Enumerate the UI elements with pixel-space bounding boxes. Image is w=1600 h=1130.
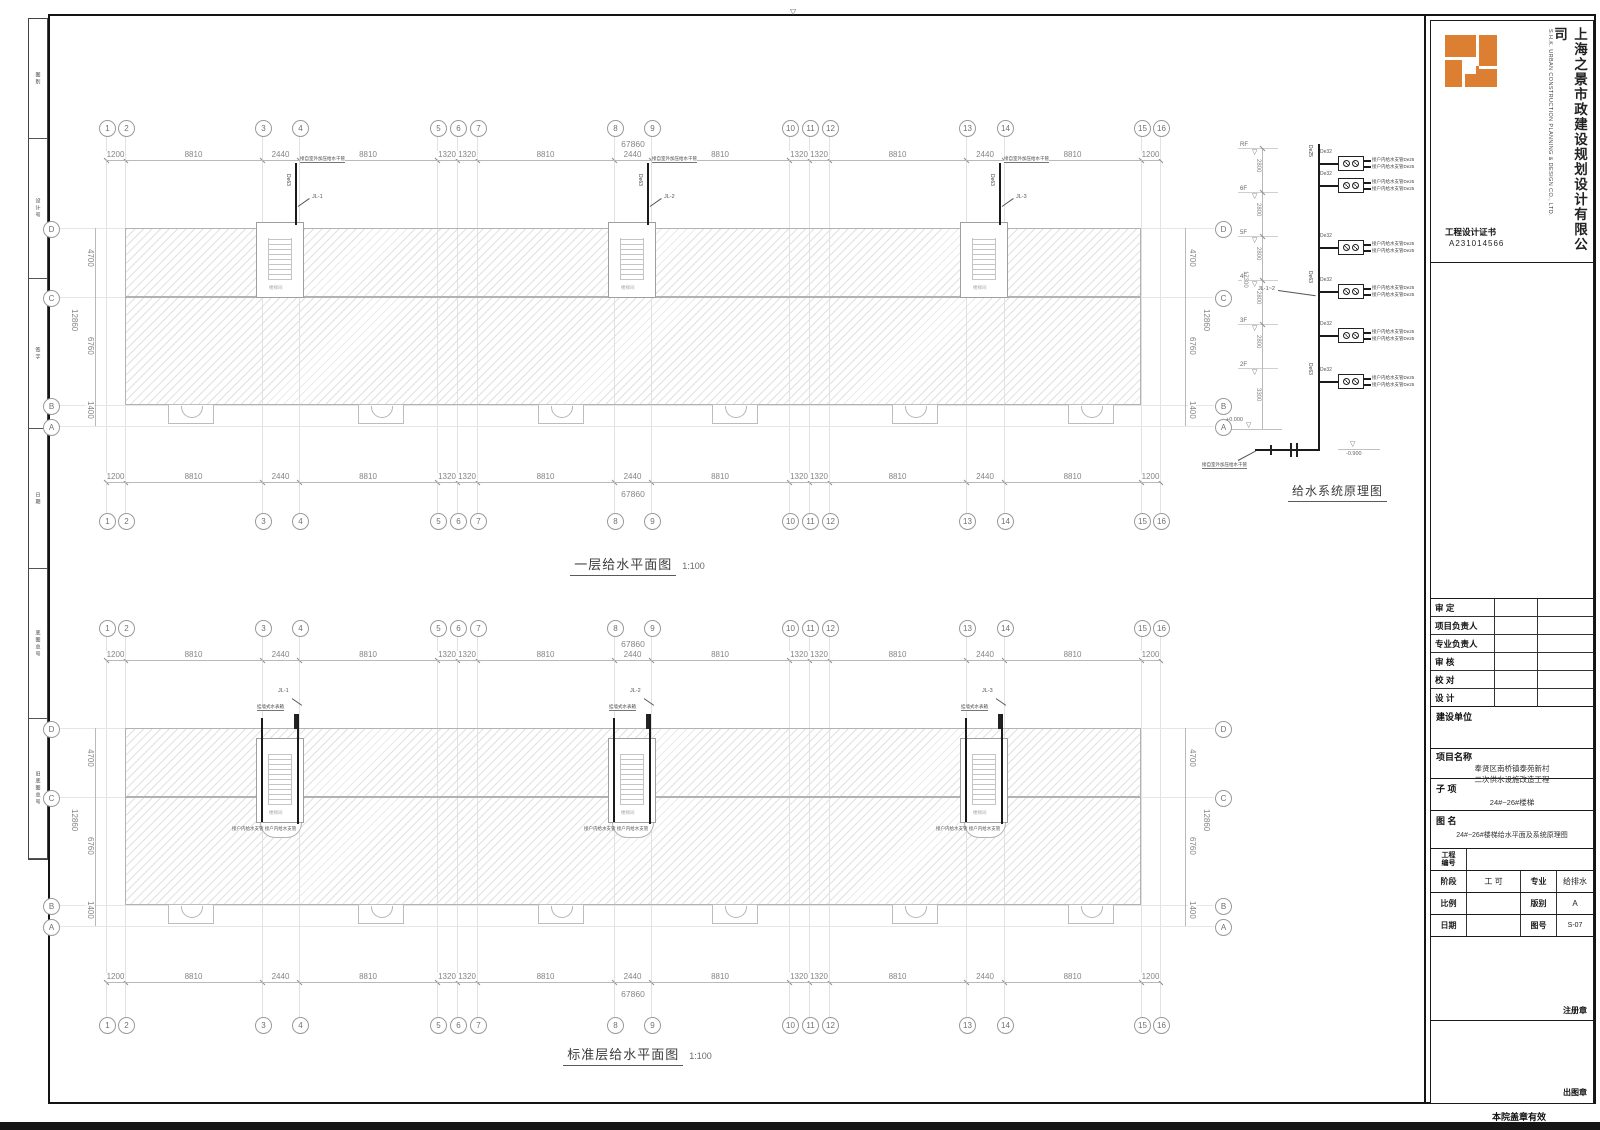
drawing-sheet: ▽ 图别设计号签字日期底图总号旧底图总号 1122334455667788991… (0, 0, 1600, 1130)
dim-label: 1200 (1141, 651, 1161, 659)
household-branch-label: 接户内给水支管De25 (1372, 164, 1414, 169)
branch-pipe (965, 718, 967, 822)
row-total-label: 12860 (1202, 808, 1210, 832)
binding-strip-label: 签字 (35, 347, 42, 361)
row-dim-line (95, 228, 96, 426)
grid-bubble-top: 5 (430, 120, 447, 137)
dim-label: 1200 (106, 151, 126, 159)
supply-main-note: 接自室外加压给水干管 (652, 156, 697, 163)
riser-id-label: JL-1~2 (1258, 286, 1275, 293)
flange-symbol (1296, 443, 1298, 457)
dim-label: 2440 (271, 473, 291, 481)
dim-label: 8810 (358, 651, 378, 659)
dim-label: 8810 (184, 151, 204, 159)
household-branch-label: 接户内给水支管De25 (1372, 241, 1414, 246)
signoff-table: 审 定项目负责人专业负责人审 核校 对设 计 (1431, 599, 1593, 707)
dim-label: 2440 (975, 973, 995, 981)
dim-label: 2440 (623, 473, 643, 481)
household-branch-label: 接户内给水支管De25 (1372, 375, 1414, 380)
row-bubble-right: C (1215, 790, 1232, 807)
dim-label: 8810 (358, 473, 378, 481)
grid-bubble-top: 14 (997, 120, 1014, 137)
branch-pipes-label: 接户内给水支管 接户内给水支管 (584, 826, 648, 831)
dim-label: 8810 (888, 473, 908, 481)
dim-label: 1200 (1141, 973, 1161, 981)
row-dim-label: 4700 (1188, 748, 1196, 768)
dim-label: 8810 (536, 651, 556, 659)
dim-label: 8810 (710, 973, 730, 981)
branch-pipe (261, 718, 263, 822)
water-meter-icon (1343, 378, 1350, 385)
level-mark: ▽ (1252, 281, 1257, 288)
grid-bubble-bottom: 2 (118, 513, 135, 530)
branch-out-line (1364, 244, 1371, 246)
riser-id-label: JL-2 (664, 194, 675, 201)
stair-room-label: 楼梯间 (621, 811, 635, 816)
grid-line (1160, 636, 1161, 1023)
row-bubble-right: C (1215, 290, 1232, 307)
signoff-date-cell (1538, 689, 1593, 707)
dim-label: 1320 (809, 651, 829, 659)
eng-no-label-2: 编号 (1442, 860, 1456, 868)
schematic-title: 给水系统原理图 (1288, 482, 1387, 502)
signoff-signature-cell (1495, 617, 1538, 634)
row-grid-line (58, 405, 1214, 406)
binding-strip-label: 设计号 (35, 198, 42, 219)
branch-connection (1318, 163, 1338, 165)
riser-id-label: JL-3 (1016, 194, 1027, 201)
riser-pipe (647, 163, 649, 225)
fig-no-label: 图号 (1521, 915, 1557, 936)
grid-bubble-bottom: 11 (802, 1017, 819, 1034)
dim-label: 8810 (184, 473, 204, 481)
household-branch-label: 接户内给水支管De25 (1372, 292, 1414, 297)
project-label: 项目名称 (1431, 749, 1593, 763)
grid-line (1160, 136, 1161, 519)
dim-label: 2440 (271, 651, 291, 659)
branch-connection (1318, 185, 1338, 187)
dim-label: 8810 (888, 151, 908, 159)
stairs (268, 754, 292, 805)
grid-bubble-bottom: 1 (99, 1017, 116, 1034)
water-meter-icon (1343, 288, 1350, 295)
dim-line-top (106, 660, 1160, 661)
signoff-label: 专业负责人 (1431, 635, 1495, 652)
branch-pipe (1001, 714, 1003, 824)
major-value: 给排水 (1557, 871, 1593, 892)
company-name-cn: 上海之景市政建设规划设计有限公司 (1549, 27, 1589, 257)
total-dim-label: 67860 (620, 990, 646, 999)
grid-bubble-bottom: 5 (430, 1017, 447, 1034)
leader-line (1278, 290, 1316, 296)
row-bubble-right: B (1215, 398, 1232, 415)
row-dim-label: 6760 (86, 336, 94, 356)
grid-line (106, 136, 107, 519)
blank-section (1431, 263, 1593, 599)
dim-label: 2440 (623, 651, 643, 659)
branch-out-line (1364, 182, 1371, 184)
dim-label: 8810 (888, 973, 908, 981)
grid-bubble-top: 13 (959, 620, 976, 637)
grid-bubble-bottom: 6 (450, 513, 467, 530)
bottom-bar (0, 1122, 1600, 1130)
level-mark: ▽ (1252, 193, 1257, 200)
edition-label: 版别 (1521, 893, 1557, 914)
grid-bubble-bottom: 1 (99, 513, 116, 530)
riser-pipe-size: De63 (989, 173, 994, 187)
binding-strip-cell: 日期 (29, 429, 47, 569)
level-mark: ▽ (1252, 325, 1257, 332)
dim-label: 1200 (106, 651, 126, 659)
stage-label: 阶段 (1431, 871, 1467, 892)
signoff-row: 校 对 (1431, 671, 1593, 689)
grid-bubble-bottom: 13 (959, 1017, 976, 1034)
grid-bubble-bottom: 12 (822, 1017, 839, 1034)
row-dim-line (95, 728, 96, 926)
signoff-row: 审 定 (1431, 599, 1593, 617)
row-dim-label: 4700 (86, 748, 94, 768)
row-total-label: 12860 (70, 808, 78, 832)
building-band-lower (125, 297, 1141, 405)
water-meter-box (1338, 240, 1364, 255)
stair-room-label: 楼梯间 (973, 811, 987, 816)
dim-label: 2440 (623, 151, 643, 159)
floor-dim-label: 2800 (1255, 334, 1261, 349)
branch-connection (1318, 335, 1338, 337)
company-section: 上海之景市政建设规划设计有限公司 S.H.K. URBAN CONSTRUCTI… (1431, 21, 1593, 263)
riser-pipe-size-low: De63 (1307, 362, 1312, 376)
registration-seal-cell: 注册章 (1431, 937, 1593, 1021)
subitem-cell: 子 项 24#~26#楼梯 (1431, 779, 1593, 811)
grid-bubble-bottom: 8 (607, 1017, 624, 1034)
grid-bubble-bottom: 8 (607, 513, 624, 530)
branch-pipes-label: 接户内给水支管 接户内给水支管 (936, 826, 1000, 831)
owner-cell: 建设单位 (1431, 707, 1593, 749)
floor-label: 6F (1240, 186, 1247, 193)
grid-bubble-top: 15 (1134, 620, 1151, 637)
signoff-label: 校 对 (1431, 671, 1495, 688)
date-row: 日期 图号 S-07 (1431, 915, 1593, 937)
dim-label: 2440 (975, 151, 995, 159)
grid-bubble-bottom: 3 (255, 513, 272, 530)
riser-id-label: JL-2 (630, 688, 641, 695)
eng-no-cell: 工程 编号 (1431, 849, 1593, 871)
grid-bubble-bottom: 15 (1134, 1017, 1151, 1034)
row-dim-label: 6760 (86, 836, 94, 856)
dim-label: 1320 (789, 973, 809, 981)
water-meter-box (1338, 374, 1364, 389)
level-mark: ▽ (1252, 237, 1257, 244)
household-branch-label: 接户内给水支管De25 (1372, 157, 1414, 162)
grid-bubble-bottom: 3 (255, 1017, 272, 1034)
drawing-name-cell: 图 名 24#~26#楼梯给水平面及系统原理图 (1431, 811, 1593, 849)
dim-label: 8810 (1063, 151, 1083, 159)
grid-bubble-top: 4 (292, 120, 309, 137)
dim-label: 8810 (710, 473, 730, 481)
dim-label: 1320 (457, 973, 477, 981)
grid-line (1141, 136, 1142, 519)
grid-bubble-bottom: 6 (450, 1017, 467, 1034)
branch-connection (1318, 247, 1338, 249)
row-dim-label: 6760 (1188, 336, 1196, 356)
grid-bubble-bottom: 9 (644, 1017, 661, 1034)
issue-seal-label: 出图章 (1563, 1087, 1587, 1098)
grid-bubble-top: 5 (430, 620, 447, 637)
grid-bubble-top: 16 (1153, 620, 1170, 637)
major-label: 专业 (1521, 871, 1557, 892)
dim-label: 2440 (975, 651, 995, 659)
dim-label: 1320 (809, 473, 829, 481)
household-branch-label: 接户内给水支管De25 (1372, 382, 1414, 387)
first-floor-plan: 1122334455667788991010111112121313141415… (40, 118, 1235, 578)
row-bubble-right: A (1215, 919, 1232, 936)
grid-bubble-bottom: 9 (644, 513, 661, 530)
water-meter-icon (1343, 244, 1350, 251)
dim-label: 8810 (536, 973, 556, 981)
dim-label: 2440 (271, 151, 291, 159)
grid-bubble-top: 8 (607, 120, 624, 137)
dim-line-top (106, 160, 1160, 161)
branch-pipes-label: 接户内给水支管 接户内给水支管 (232, 826, 296, 831)
floor-dim-label: 2800 (1255, 158, 1261, 173)
supply-main-note: 接自室外加压给水干管 (1004, 156, 1049, 163)
dim-label: 8810 (888, 651, 908, 659)
stair-room-label: 楼梯间 (269, 286, 283, 291)
issue-seal-cell: 出图章 (1431, 1021, 1593, 1102)
level-mark: ▽ (1252, 369, 1257, 376)
branch-pipe (649, 714, 651, 824)
signoff-date-cell (1538, 671, 1593, 688)
household-branch-label: 接户内给水支管De25 (1372, 186, 1414, 191)
row-bubble-left: D (43, 221, 60, 238)
grid-bubble-bottom: 5 (430, 513, 447, 530)
leader-line (1238, 451, 1256, 461)
grid-bubble-bottom: 14 (997, 513, 1014, 530)
stair-room-label: 楼梯间 (269, 811, 283, 816)
grid-bubble-bottom: 10 (782, 1017, 799, 1034)
water-meter-box (1338, 178, 1364, 193)
grid-bubble-top: 11 (802, 620, 819, 637)
standard-floor-plan: 1122334455667788991010111112121313141415… (40, 618, 1235, 1068)
binding-strip-label: 旧底图总号 (35, 771, 42, 806)
project-cell: 项目名称 奉贤区南桥镇泰苑新村 二次供水设施改造工程 (1431, 749, 1593, 779)
dim-label: 1200 (106, 973, 126, 981)
grid-bubble-top: 11 (802, 120, 819, 137)
row-total-label: 12860 (70, 308, 78, 332)
grid-bubble-top: 15 (1134, 120, 1151, 137)
row-bubble-left: A (43, 419, 60, 436)
scale-label: 比例 (1431, 893, 1467, 914)
riser-pipe (999, 163, 1001, 225)
date-value (1467, 915, 1521, 936)
dim-label: 1320 (437, 973, 457, 981)
grid-bubble-bottom: 12 (822, 513, 839, 530)
dim-label: 8810 (358, 151, 378, 159)
branch-out-line (1364, 338, 1371, 340)
supply-main-note: 接自室外加压给水干管 (300, 156, 345, 163)
plan-title: 标准层给水平面图1:100 (40, 1044, 1235, 1066)
row-bubble-left: A (43, 919, 60, 936)
grid-bubble-top: 2 (118, 120, 135, 137)
signoff-date-cell (1538, 617, 1593, 634)
branch-pipe-size: De32 (1320, 233, 1332, 239)
eng-no-label-1: 工程 (1442, 852, 1456, 860)
dim-label: 1200 (1141, 473, 1161, 481)
fold-mark: ▽ (790, 7, 796, 16)
stair-room-label: 楼梯间 (973, 286, 987, 291)
dim-label: 2440 (975, 473, 995, 481)
signoff-signature-cell (1495, 599, 1538, 616)
household-branch-label: 接户内给水支管De25 (1372, 285, 1414, 290)
leader-line (292, 698, 302, 706)
water-meter-icon (1352, 288, 1359, 295)
dim-label: 1200 (1141, 151, 1161, 159)
dim-label: 1320 (457, 151, 477, 159)
water-meter-icon (1352, 244, 1359, 251)
row-dim-label: 1400 (1188, 900, 1196, 920)
grid-bubble-top: 14 (997, 620, 1014, 637)
leader-line (644, 698, 654, 706)
row-bubble-left: C (43, 790, 60, 807)
dim-line-bottom (106, 982, 1160, 983)
grid-line (106, 636, 107, 1023)
total-dim-label: 67860 (620, 140, 646, 149)
water-meter-icon (1352, 182, 1359, 189)
row-bubble-left: D (43, 721, 60, 738)
grid-bubble-top: 1 (99, 620, 116, 637)
riser-pipe (1318, 144, 1320, 449)
grid-bubble-bottom: 11 (802, 513, 819, 530)
floor-label: 3F (1240, 318, 1247, 325)
branch-out-line (1364, 166, 1371, 168)
branch-out-line (1364, 288, 1371, 290)
dim-label: 1320 (789, 651, 809, 659)
branch-out-line (1364, 188, 1371, 190)
plan-scale-text: 1:100 (682, 561, 705, 571)
owner-label: 建设单位 (1431, 707, 1593, 723)
branch-pipe-size: De32 (1320, 149, 1332, 155)
grid-bubble-bottom: 14 (997, 1017, 1014, 1034)
grid-bubble-bottom: 15 (1134, 513, 1151, 530)
water-meter-box (1338, 284, 1364, 299)
level-mark: ▽ (1246, 422, 1251, 429)
valve-symbol (1270, 445, 1272, 455)
riser-pipe-size-top: De25 (1307, 144, 1312, 158)
grid-bubble-top: 2 (118, 620, 135, 637)
household-branch-label: 接户内给水支管De25 (1372, 336, 1414, 341)
branch-out-line (1364, 384, 1371, 386)
water-meter-box (1338, 156, 1364, 171)
branch-connection (1318, 291, 1338, 293)
stairs (620, 754, 644, 805)
row-dim-label: 4700 (86, 248, 94, 268)
dim-label: 1320 (789, 151, 809, 159)
grid-bubble-top: 13 (959, 120, 976, 137)
water-meter-icon (1352, 160, 1359, 167)
drawing-name-label: 图 名 (1431, 811, 1593, 827)
row-grid-line (58, 905, 1214, 906)
signoff-label: 设 计 (1431, 689, 1495, 707)
row-grid-line (58, 426, 1214, 427)
row-dim-line (1185, 728, 1186, 926)
base-level-line (1338, 449, 1380, 450)
grid-bubble-bottom: 13 (959, 513, 976, 530)
branch-connection (1318, 381, 1338, 383)
water-meter-box (1338, 328, 1364, 343)
signoff-row: 专业负责人 (1431, 635, 1593, 653)
plan-title: 一层给水平面图1:100 (40, 554, 1235, 576)
grid-bubble-top: 10 (782, 620, 799, 637)
grid-bubble-bottom: 7 (470, 1017, 487, 1034)
dim-label: 8810 (1063, 651, 1083, 659)
binding-strip-label: 日期 (35, 492, 42, 506)
riser-id-label: JL-1 (312, 194, 323, 201)
stairs (268, 238, 292, 280)
drawing-name-value: 24#~26#楼梯给水平面及系统原理图 (1431, 830, 1593, 840)
scale-row: 比例 版别 A (1431, 893, 1593, 915)
ground-level-label: +0.000 (1226, 417, 1243, 424)
dim-label: 8810 (710, 151, 730, 159)
household-branch-label: 接户内给水支管De25 (1372, 248, 1414, 253)
household-branch-label: 接户内给水支管De25 (1372, 179, 1414, 184)
dim-label: 1200 (106, 473, 126, 481)
title-block: 上海之景市政建设规划设计有限公司 S.H.K. URBAN CONSTRUCTI… (1430, 20, 1594, 1104)
branch-pipe-size: De32 (1320, 367, 1332, 373)
meter-box-label: 挂墙式水表箱 (257, 704, 284, 711)
branch-out-line (1364, 332, 1371, 334)
grid-bubble-bottom: 7 (470, 513, 487, 530)
water-meter-icon (1352, 332, 1359, 339)
grid-bubble-top: 7 (470, 120, 487, 137)
cert-number: A231014566 (1449, 239, 1504, 248)
edition-value: A (1557, 893, 1593, 914)
dim-label: 8810 (536, 151, 556, 159)
stairs (620, 238, 644, 280)
row-grid-line (58, 926, 1214, 927)
grid-bubble-top: 12 (822, 620, 839, 637)
dim-label: 8810 (358, 973, 378, 981)
household-branch-label: 接户内给水支管De25 (1372, 329, 1414, 334)
dim-label: 1320 (809, 973, 829, 981)
total-dim-label: 67860 (620, 490, 646, 499)
grid-bubble-top: 4 (292, 620, 309, 637)
signoff-label: 项目负责人 (1431, 617, 1495, 634)
grid-bubble-top: 16 (1153, 120, 1170, 137)
level-mark: ▽ (1252, 149, 1257, 156)
signoff-label: 审 核 (1431, 653, 1495, 670)
grid-bubble-top: 6 (450, 620, 467, 637)
grid-bubble-top: 9 (644, 620, 661, 637)
grid-bubble-top: 12 (822, 120, 839, 137)
row-bubble-left: B (43, 898, 60, 915)
stairs (972, 238, 996, 280)
row-bubble-right: B (1215, 898, 1232, 915)
riser-pipe-size-mid: De63 (1307, 270, 1312, 284)
binding-strip-cell: 旧底图总号 (29, 719, 47, 859)
row-bubble-left: B (43, 398, 60, 415)
signoff-signature-cell (1495, 653, 1538, 670)
company-name-en: S.H.K. URBAN CONSTRUCTION PLANNING & DES… (1547, 29, 1553, 254)
floor-label: 4F (1240, 274, 1247, 281)
dim-label: 2440 (623, 973, 643, 981)
riser-pipe-size: De63 (285, 173, 290, 187)
fig-no-value: S-07 (1557, 915, 1593, 936)
signoff-row: 设 计 (1431, 689, 1593, 707)
signoff-row: 项目负责人 (1431, 617, 1593, 635)
branch-pipe-size: De32 (1320, 171, 1332, 177)
branch-out-line (1364, 250, 1371, 252)
supply-pipe (1255, 449, 1320, 451)
